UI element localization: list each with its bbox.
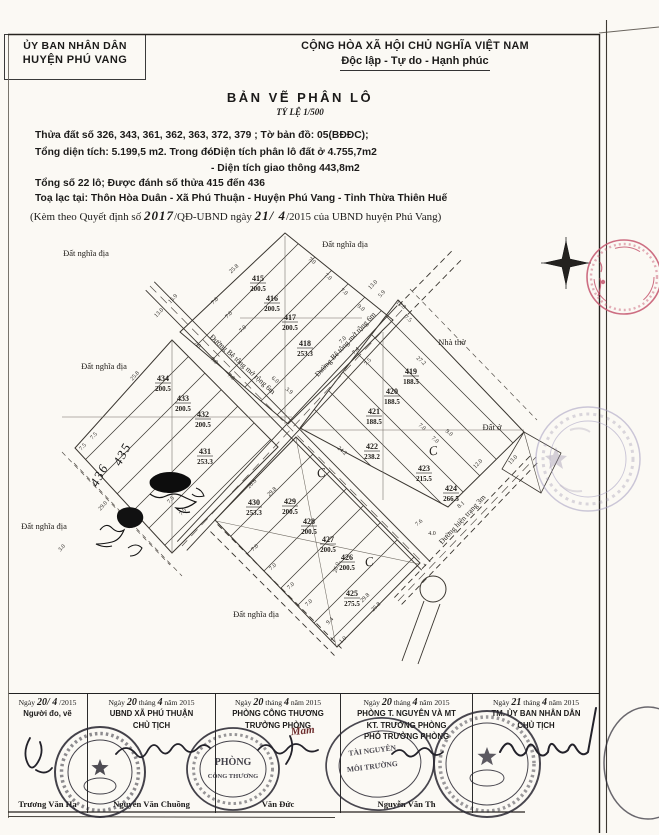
dimension-label: 3.9 [284, 387, 294, 396]
svg-text:200.5: 200.5 [339, 564, 355, 572]
svg-text:266.5: 266.5 [443, 495, 459, 503]
dimension-label: 7.4 [352, 347, 362, 357]
dimension-label: 9.0 [444, 429, 454, 438]
dimension-label: 8.1 [457, 501, 467, 510]
signature-date: Ngày 20 tháng 4 năm 2015 [88, 697, 215, 708]
dimension-label: 6.0 [270, 376, 280, 385]
svg-text:430: 430 [248, 498, 260, 507]
svg-text:423: 423 [418, 464, 430, 473]
dimension-label: 26.0 [333, 562, 342, 574]
lot-label: 433200.5 [175, 394, 191, 413]
svg-text:253.3: 253.3 [297, 350, 313, 358]
signer-name: Nguyễn Văn Chuồng [88, 799, 215, 809]
total-area-line: Tổng diện tích: 5.199,5 m2. Trong đó: [35, 147, 217, 158]
red-stamp-arc [587, 240, 659, 314]
dimension-label: 7.0 [430, 436, 440, 445]
lot-label: 415200.5 [250, 274, 266, 293]
dimension-label: 29.0 [98, 500, 109, 512]
lot-label: 421188.5 [366, 407, 382, 426]
motto-underline [340, 70, 490, 71]
compass-rose [541, 237, 591, 289]
dimension-label: 12.0 [472, 458, 484, 470]
svg-text:415: 415 [252, 274, 264, 283]
svg-text:200.5: 200.5 [282, 508, 298, 516]
lot-strip-lines [115, 432, 539, 652]
location-line: Toạ lạc tại: Thôn Hòa Duân - Xã Phú Thuậ… [35, 193, 447, 204]
lot-label: 423215.5 [416, 464, 432, 483]
signature-role-line: TM. ỦY BAN NHÂN DÂN [473, 709, 599, 720]
dimension-label: 7.5 [179, 508, 188, 518]
dimension-label: 7.0 [225, 311, 235, 321]
land-use-label: Đất nghĩa địa [233, 609, 279, 619]
road-area-line: - Diện tích giao thông 443,8m2 [211, 163, 360, 174]
svg-text:431: 431 [199, 447, 211, 456]
dimension-label: 13.0 [153, 307, 165, 319]
ink-blots [96, 472, 204, 556]
dimension-label: 13.0 [367, 279, 379, 291]
road-name-label: Đường Bê tông mở rộng 6m [208, 332, 277, 396]
dimension-label: 25.8 [370, 601, 382, 613]
signer-name: Trương Văn Hạ [8, 799, 87, 809]
signature-cell: Ngày 21 tháng 4 năm 2015TM. ỦY BAN NHÂN … [473, 694, 599, 813]
lot-label: 430253.3 [246, 498, 262, 517]
svg-text:416: 416 [266, 294, 278, 303]
dimension-label: 7.5 [79, 443, 88, 453]
dimension-label: 24.2 [336, 446, 348, 457]
dimension-label: 13.0 [507, 454, 519, 466]
signature-role-line: CHỦ TỊCH [88, 721, 215, 732]
lot-label: 420188.5 [384, 387, 400, 406]
lot-label: 422238.2 [364, 442, 380, 461]
svg-text:238.2: 238.2 [364, 453, 380, 461]
road-junction-circle [420, 576, 446, 602]
dimension-label: 7.0 [323, 273, 333, 282]
lot-label: 425275.5 [344, 589, 360, 608]
svg-text:426: 426 [341, 553, 353, 562]
svg-text:215.5: 215.5 [416, 475, 432, 483]
svg-text:253.3: 253.3 [197, 458, 213, 466]
dimension-label: 1.0 [339, 636, 349, 646]
national-motto-line1: CỘNG HÒA XÃ HỘI CHỦ NGHĨA VIỆT NAM [240, 40, 590, 52]
lot-count-line: Tổng số 22 lô; Được đánh số thửa 415 đến… [35, 178, 265, 189]
signature-table: Ngày 20/ 4 /2015Người đo, vẽTrương Văn H… [8, 693, 599, 813]
road-name-label: Đường hiện trạng 3m [437, 493, 488, 546]
svg-text:420: 420 [386, 387, 398, 396]
dimension-label: 5.9 [378, 290, 388, 300]
svg-text:424: 424 [445, 484, 457, 493]
svg-text:275.5: 275.5 [344, 600, 360, 608]
svg-text:188.5: 188.5 [384, 398, 400, 406]
dimension-label: 7.0 [192, 341, 202, 350]
signature-role-line: PHÒNG CÔNG THƯƠNG [216, 709, 340, 720]
dimension-label: 29.8 [359, 592, 371, 604]
svg-text:425: 425 [346, 589, 358, 598]
dimension-label: 12.0 [395, 300, 407, 311]
dimension-label: 3.0 [58, 544, 67, 554]
dimension-label: 7.5 [167, 496, 176, 506]
lot-label: 424266.5 [443, 484, 459, 503]
national-motto-line2: Độc lập - Tự do - Hạnh phúc [240, 55, 590, 67]
svg-text:200.5: 200.5 [264, 305, 280, 313]
lot-block-outline [180, 233, 393, 424]
land-use-label: Đất nghĩa địa [63, 248, 109, 258]
dimension-label: 7.0 [211, 297, 221, 307]
dimension-label: 7.0 [209, 357, 219, 366]
lot-strip-lines [113, 228, 464, 429]
signature-date: Ngày 20/ 4 /2015 [8, 697, 87, 708]
lot-label: 419188.5 [403, 367, 419, 386]
faded-stamp [536, 407, 640, 511]
issuer-line2: HUYỆN PHÚ VANG [5, 54, 145, 66]
signature-role-line: UBND XÃ PHÚ THUẬN [88, 709, 215, 720]
document-page: ỦY BAN NHÂN DÂN HUYỆN PHÚ VANG CỘNG HÒA … [0, 0, 659, 835]
issuer-box: ỦY BAN NHÂN DÂN HUYỆN PHÚ VANG [4, 34, 146, 80]
lot-label: 428200.5 [301, 517, 317, 536]
handwritten-lot-number: 436 [87, 461, 112, 489]
dimension-label: 7.5 [403, 315, 413, 324]
page-title: BẢN VẼ PHÂN LÔ [0, 90, 600, 105]
signature-role-line: PHÓ TRƯỞNG PHÒNG [341, 732, 472, 743]
dimension-label: 26.6 [246, 478, 258, 490]
dimension-label: 27.2 [415, 356, 427, 367]
signature-role-line: CHỦ TỊCH [473, 721, 599, 732]
land-use-label: Nhà thờ [438, 337, 466, 347]
lot-label: 432200.5 [195, 410, 211, 429]
dimension-label: 7.0 [226, 373, 236, 382]
lot-block-outline [300, 300, 524, 507]
dimension-label: 7.0 [339, 336, 349, 346]
dimension-label: 7.0 [417, 423, 427, 432]
dimension-label: 15.9 [167, 293, 179, 305]
signature-cell: Ngày 20 tháng 4 năm 2015PHÒNG T. NGUYÊN … [341, 694, 473, 813]
road-name-label: Đường Bê tông mở rộng 6m [313, 310, 378, 379]
decree-line: (Kèm theo Quyết định số 2017/QĐ-UBND ngà… [30, 208, 441, 224]
signature-cell: Ngày 20 tháng 4 năm 2015UBND XÃ PHÚ THUẬ… [88, 694, 216, 813]
partial-right-stamp [604, 707, 659, 819]
lot-area-line: - Diện tích phân lô đất ở 4.755,7m2 [207, 147, 377, 158]
svg-text:434: 434 [157, 374, 169, 383]
dimension-label: 7.0 [251, 544, 261, 554]
dimension-label: 4.0 [428, 531, 436, 537]
dimension-label: 25.8 [130, 370, 141, 382]
handwritten-check-mark: C [427, 442, 439, 459]
dimension-label: 7.0 [239, 325, 249, 335]
svg-text:253.3: 253.3 [246, 509, 262, 517]
svg-text:200.5: 200.5 [250, 285, 266, 293]
dimension-label: 7.0 [287, 582, 297, 592]
svg-text:188.5: 188.5 [366, 418, 382, 426]
signature-role-line: TRƯỞNG PHÒNG [216, 721, 340, 732]
lot-strip-lines [0, 335, 375, 558]
svg-text:200.5: 200.5 [175, 405, 191, 413]
lot-strip-lines [200, 295, 582, 512]
svg-text:419: 419 [405, 367, 417, 376]
svg-text:429: 429 [284, 497, 296, 506]
decree-number-handwritten: 2017 [144, 208, 174, 223]
signature-role-line: PHÒNG T. NGUYÊN VÀ MT [341, 709, 472, 720]
land-use-label: Đất nghĩa địa [21, 521, 67, 531]
svg-text:417: 417 [284, 313, 296, 322]
dimension-label: 7.0 [339, 288, 349, 297]
signature-role-line: Người đo, vẽ [8, 709, 87, 720]
svg-text:428: 428 [303, 517, 315, 526]
signature-role-line: KT. TRƯỞNG PHÒNG [341, 721, 472, 732]
dimension-label: 7.5 [364, 358, 374, 368]
land-use-label: Đất nghĩa địa [81, 361, 127, 371]
land-use-label: Đất ở [483, 422, 502, 432]
national-header: CỘNG HÒA XÃ HỘI CHỦ NGHĨA VIỆT NAM Độc l… [240, 40, 590, 71]
signature-date: Ngày 20 tháng 4 năm 2015 [341, 697, 472, 708]
issuer-line1: ỦY BAN NHÂN DÂN [5, 40, 145, 52]
svg-text:421: 421 [368, 407, 380, 416]
lot-label: 434200.5 [155, 374, 171, 393]
lot-label: 427200.5 [320, 535, 336, 554]
lot-label: 416200.5 [264, 294, 280, 313]
lot-block-outline [215, 437, 420, 647]
dimension-label: 25.8 [228, 264, 240, 275]
signer-name: Nguyễn Văn Th [341, 799, 472, 809]
parcel-numbers-line: Thửa đất số 326, 343, 361, 362, 363, 372… [35, 130, 369, 141]
svg-text:200.5: 200.5 [155, 385, 171, 393]
signature-date: Ngày 20 tháng 4 năm 2015 [216, 697, 340, 708]
svg-text:188.5: 188.5 [403, 378, 419, 386]
decree-pre: (Kèm theo Quyết định số [30, 211, 141, 223]
dimension-label: 7.5 [90, 432, 99, 442]
svg-text:200.5: 200.5 [282, 324, 298, 332]
svg-text:422: 422 [366, 442, 378, 451]
dimension-label: 9.4 [326, 617, 336, 627]
svg-text:418: 418 [299, 339, 311, 348]
signer-name: Văn Đức [216, 799, 340, 809]
handwritten-check-mark: C [363, 553, 375, 570]
handwritten-lot-number: 435 [110, 440, 135, 468]
decree-date-handwritten: 21/ 4 [255, 208, 286, 223]
lot-label: 431253.3 [197, 447, 213, 466]
svg-text:433: 433 [177, 394, 189, 403]
signature-cell: Ngày 20/ 4 /2015Người đo, vẽTrương Văn H… [8, 694, 88, 813]
signature-date: Ngày 21 tháng 4 năm 2015 [473, 697, 599, 708]
decree-post: /2015 của UBND huyện Phú Vang) [286, 211, 441, 223]
handwritten-check-mark: C [315, 464, 327, 481]
lot-label: 426200.5 [339, 553, 355, 572]
svg-text:200.5: 200.5 [320, 546, 336, 554]
svg-text:427: 427 [322, 535, 334, 544]
dimension-label: 29.8 [266, 486, 278, 498]
dimension-label: 7.0 [305, 599, 315, 609]
dimension-label: 9.0 [356, 304, 366, 313]
lot-label: 418253.3 [297, 339, 313, 358]
svg-text:200.5: 200.5 [195, 421, 211, 429]
dimension-label: 7.0 [307, 257, 317, 266]
map-scale: TỶ LỆ 1/500 [0, 107, 600, 117]
lot-label: 417200.5 [282, 313, 298, 332]
lot-label: 429200.5 [282, 497, 298, 516]
signature-cell: Ngày 20 tháng 4 năm 2015PHÒNG CÔNG THƯƠN… [216, 694, 341, 813]
decree-mid: /QĐ-UBND ngày [174, 211, 252, 223]
svg-text:200.5: 200.5 [301, 528, 317, 536]
lot-block-outline [75, 340, 278, 553]
dimension-label: 7.0 [269, 563, 279, 573]
dimension-label: 7.6 [415, 519, 425, 528]
svg-text:432: 432 [197, 410, 209, 419]
land-use-label: Đất nghĩa địa [322, 239, 368, 249]
